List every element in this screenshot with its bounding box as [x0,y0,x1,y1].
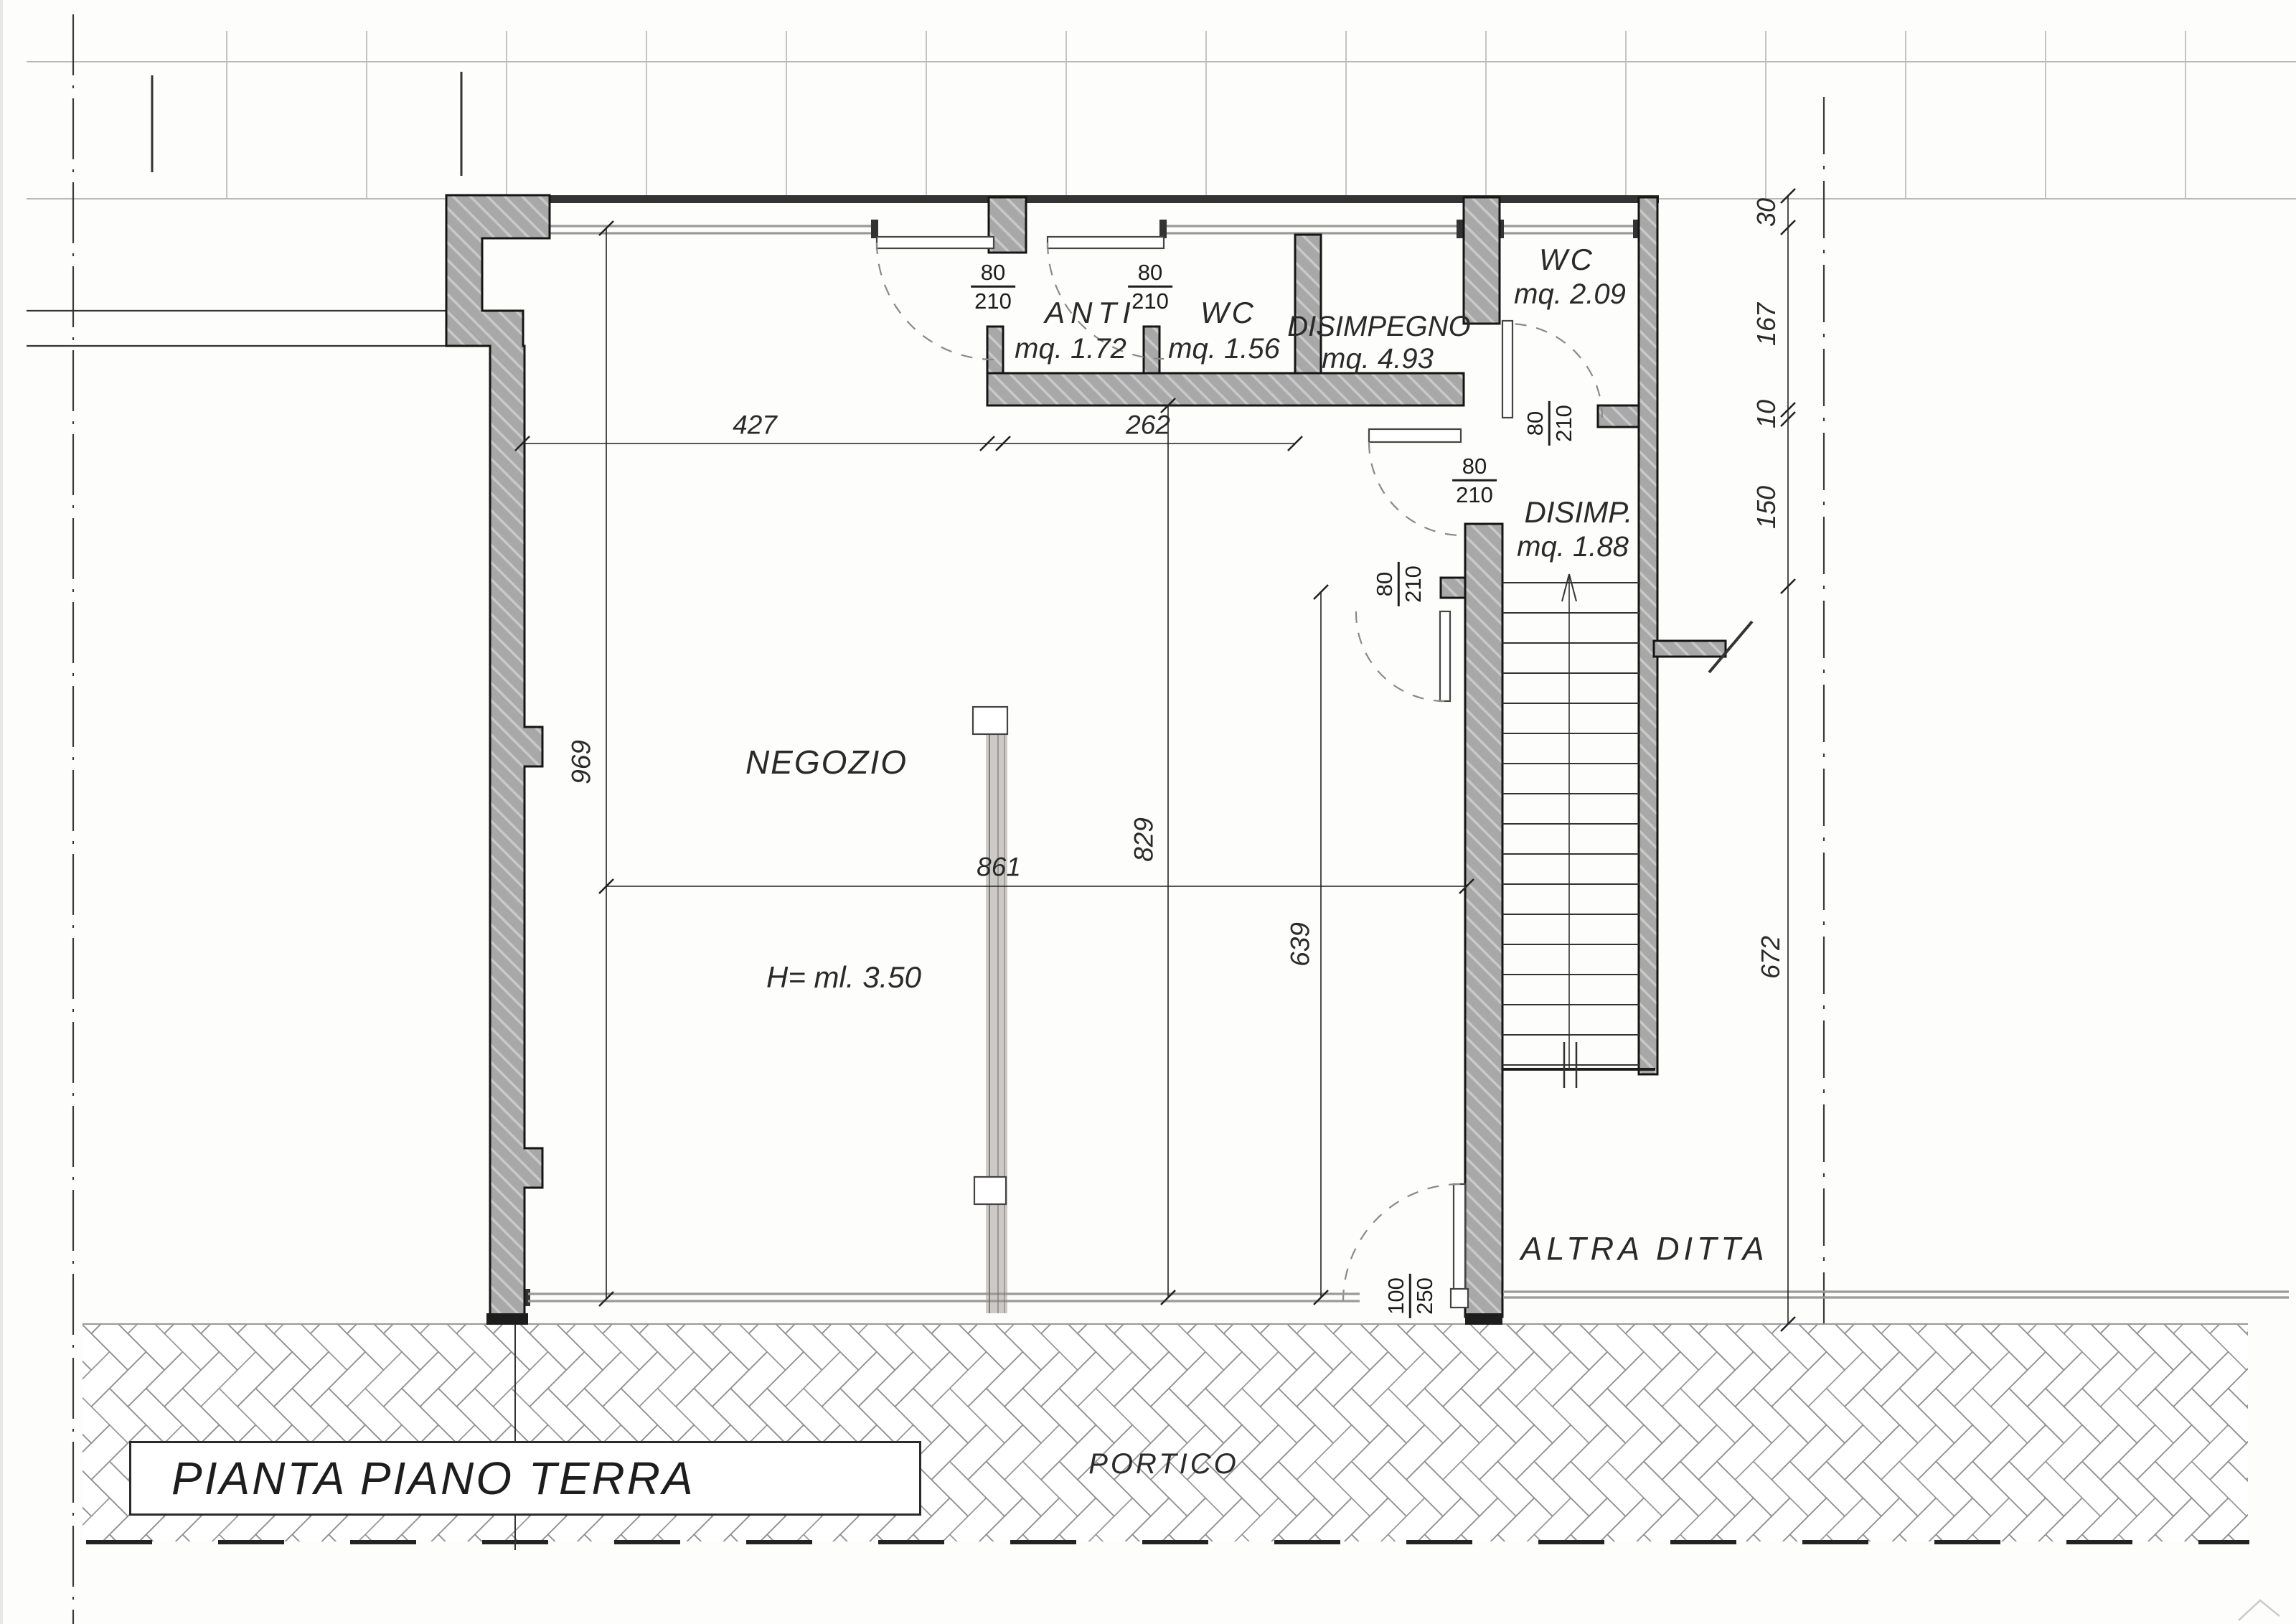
dim-861: 861 [977,854,1021,881]
sidewalk-joints [227,31,2186,199]
staircase [1502,574,1655,1088]
room-label-anti: ANTI [1045,298,1137,328]
dim-427: 427 [733,412,777,438]
room-label-altra-ditta: ALTRA DITTA [1520,1233,1768,1265]
dim-672: 672 [1758,936,1784,979]
room-label-negozio: NEGOZIO [745,746,908,779]
floor-plan-drawing [0,0,2296,1624]
room-area-anti: mq. 1.72 [1015,334,1126,363]
door-size-disimp-passage: 80 210 [1452,454,1497,507]
dim-969: 969 [568,740,595,784]
dim-262: 262 [1126,412,1170,438]
room-area-wc-small: mq. 1.56 [1168,334,1280,363]
door-size-wc-small-entry: 80 210 [1128,261,1172,314]
negozio-height-note: H= ml. 3.50 [766,962,921,992]
stair-treads [1502,583,1639,1065]
room-area-disimp: mq. 1.88 [1517,532,1629,561]
dim-150: 150 [1754,486,1779,529]
room-label-portico: PORTICO [1088,1450,1239,1478]
title-block-text: PIANTA PIANO TERRA [171,1452,695,1505]
door-size-wc-upper-entry: 80 210 [1523,401,1576,446]
door-size-shop-entry: 100 250 [1384,1274,1437,1318]
door-size-anti-entry: 80 210 [971,261,1015,314]
room-label-disimpegno: DISIMPEGNO [1287,312,1471,341]
room-label-wc-upper: WC [1539,245,1595,275]
dim-30: 30 [1754,198,1779,227]
pencil-partition [973,707,1007,1313]
room-label-disimp: DISIMP. [1525,497,1633,527]
title-block: PIANTA PIANO TERRA [129,1441,921,1516]
door-size-corridor-door: 80 210 [1373,562,1426,606]
dim-167: 167 [1754,303,1779,346]
floor-plan-page: ANTI mq. 1.72 WC mq. 1.56 DISIMPEGNO mq.… [0,0,2296,1624]
dim-829: 829 [1131,817,1157,862]
dim-10: 10 [1754,400,1779,428]
wall-caps [486,1313,1502,1325]
room-area-disimpegno: mq. 4.93 [1322,344,1434,373]
dim-639: 639 [1287,922,1314,967]
room-area-wc-upper: mq. 2.09 [1514,280,1626,309]
room-label-wc-small: WC [1200,298,1256,328]
